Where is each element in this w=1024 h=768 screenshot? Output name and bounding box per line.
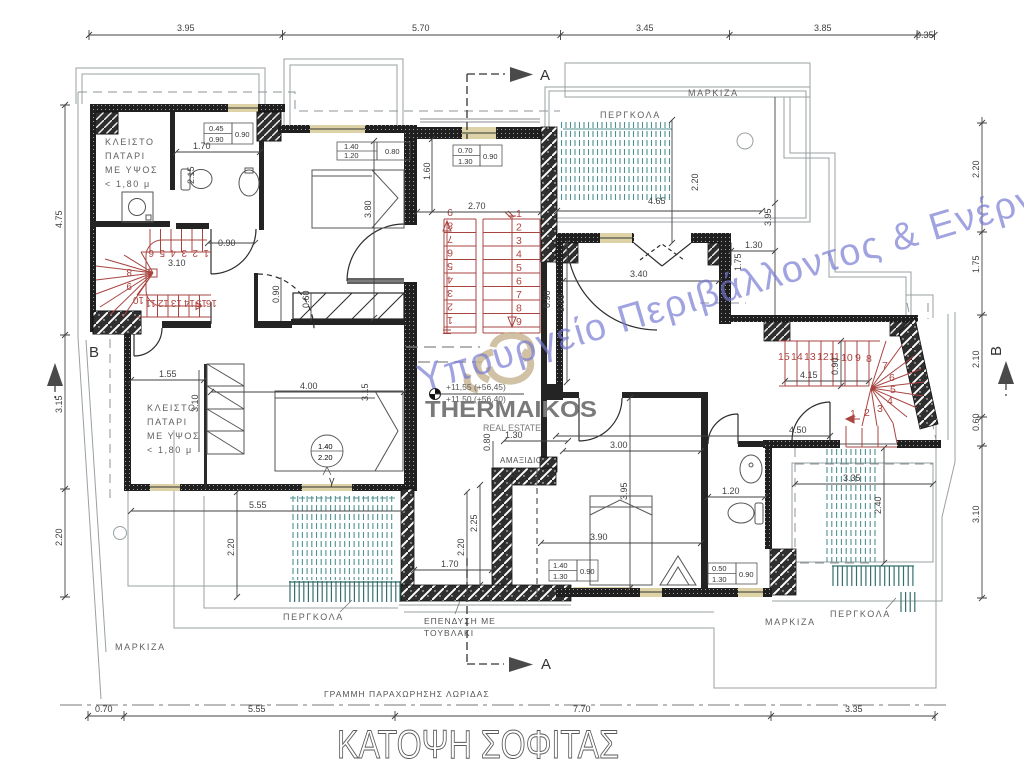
svg-text:1.70: 1.70 xyxy=(441,559,459,569)
svg-text:ΑΜΑΞΙΔΙΟ: ΑΜΑΞΙΔΙΟ xyxy=(500,456,543,465)
svg-text:0.70: 0.70 xyxy=(458,146,473,155)
svg-text:2.40: 2.40 xyxy=(873,496,883,514)
svg-text:ΠΕΡΓΚΟΛΑ: ΠΕΡΓΚΟΛΑ xyxy=(830,609,891,619)
svg-text:0.60: 0.60 xyxy=(301,290,311,308)
svg-text:9: 9 xyxy=(855,352,861,364)
svg-text:4.15: 4.15 xyxy=(800,370,818,380)
svg-text:9: 9 xyxy=(126,280,132,291)
svg-text:3.00: 3.00 xyxy=(556,294,566,312)
svg-text:REAL ESTATE: REAL ESTATE xyxy=(483,423,541,434)
svg-text:1.30: 1.30 xyxy=(712,575,727,584)
svg-text:0.90: 0.90 xyxy=(542,290,552,308)
svg-text:ΜΑΡΚΙΖΑ: ΜΑΡΚΙΖΑ xyxy=(115,642,166,652)
svg-text:2.20: 2.20 xyxy=(226,538,236,556)
svg-text:3: 3 xyxy=(447,287,453,299)
svg-text:B: B xyxy=(988,346,1005,356)
svg-text:11: 11 xyxy=(145,297,156,308)
svg-text:9: 9 xyxy=(516,316,522,328)
svg-text:5: 5 xyxy=(447,260,453,272)
svg-text:ΚΛΕΙΣΤΟ: ΚΛΕΙΣΤΟ xyxy=(147,403,197,413)
svg-text:13: 13 xyxy=(170,297,182,308)
svg-text:8: 8 xyxy=(516,303,522,315)
svg-text:5.70: 5.70 xyxy=(412,23,430,33)
svg-text:2.70: 2.70 xyxy=(468,201,486,211)
svg-text:3.80: 3.80 xyxy=(363,200,373,218)
svg-text:3: 3 xyxy=(516,235,522,247)
svg-text:10: 10 xyxy=(841,352,853,364)
svg-text:2.20: 2.20 xyxy=(690,173,700,191)
svg-text:2: 2 xyxy=(864,407,870,419)
svg-text:1.40: 1.40 xyxy=(553,561,568,570)
svg-text:16: 16 xyxy=(205,297,217,308)
svg-text:0.50: 0.50 xyxy=(712,564,727,573)
svg-text:ΠΑΤΑΡΙ: ΠΑΤΑΡΙ xyxy=(105,151,146,161)
svg-text:6: 6 xyxy=(889,372,895,384)
svg-text:ΜΑΡΚΙΖΑ: ΜΑΡΚΙΖΑ xyxy=(765,617,816,627)
svg-text:4.50: 4.50 xyxy=(789,425,807,435)
svg-text:3.15: 3.15 xyxy=(54,395,64,413)
svg-text:4: 4 xyxy=(887,395,893,407)
svg-text:14: 14 xyxy=(791,351,803,363)
svg-text:4.00: 4.00 xyxy=(300,381,318,391)
svg-text:ΕΠΕΝΔΥΣΗ ΜΕ: ΕΠΕΝΔΥΣΗ ΜΕ xyxy=(424,616,496,626)
svg-text:1: 1 xyxy=(516,208,522,220)
svg-text:1.20: 1.20 xyxy=(344,151,359,160)
svg-text:3: 3 xyxy=(181,247,187,258)
svg-text:8: 8 xyxy=(126,266,132,277)
svg-text:2: 2 xyxy=(447,301,453,313)
svg-text:0.90: 0.90 xyxy=(218,238,236,248)
svg-text:1.30: 1.30 xyxy=(745,240,763,250)
svg-text:A: A xyxy=(541,656,551,673)
svg-text:B: B xyxy=(89,344,99,361)
svg-text:3.90: 3.90 xyxy=(590,532,608,542)
svg-text:3.45: 3.45 xyxy=(636,23,654,33)
svg-text:1.30: 1.30 xyxy=(458,157,473,166)
svg-text:2.25: 2.25 xyxy=(469,514,479,532)
svg-text:4.75: 4.75 xyxy=(54,210,64,228)
svg-text:0.90: 0.90 xyxy=(235,130,250,139)
svg-text:0.90: 0.90 xyxy=(483,152,498,161)
svg-text:2.10: 2.10 xyxy=(971,350,981,368)
svg-text:A: A xyxy=(540,67,550,84)
svg-text:6: 6 xyxy=(148,247,154,258)
svg-text:7: 7 xyxy=(882,360,888,372)
svg-text:3.10: 3.10 xyxy=(168,258,186,268)
svg-text:14: 14 xyxy=(183,297,195,308)
svg-text:1: 1 xyxy=(447,314,453,326)
svg-text:1.70: 1.70 xyxy=(193,141,211,151)
svg-text:0.45: 0.45 xyxy=(209,124,224,133)
svg-text:3.85: 3.85 xyxy=(814,23,832,33)
svg-text:10: 10 xyxy=(132,294,144,305)
svg-text:6: 6 xyxy=(447,247,453,259)
svg-text:12: 12 xyxy=(817,351,829,363)
svg-text:3.35: 3.35 xyxy=(843,473,861,483)
svg-text:2.20: 2.20 xyxy=(54,528,64,546)
svg-text:ΚΛΕΙΣΤΟ: ΚΛΕΙΣΤΟ xyxy=(105,137,155,147)
svg-text:5: 5 xyxy=(516,262,522,274)
svg-text:1: 1 xyxy=(850,408,856,420)
svg-text:1.40: 1.40 xyxy=(344,142,359,151)
svg-text:13: 13 xyxy=(804,351,816,363)
svg-text:0.90: 0.90 xyxy=(580,567,595,576)
svg-text:8: 8 xyxy=(447,220,453,232)
svg-text:7: 7 xyxy=(516,289,522,301)
svg-text:6: 6 xyxy=(516,276,522,288)
svg-text:4: 4 xyxy=(447,274,453,286)
svg-text:ΠΕΡΓΚΟΛΑ: ΠΕΡΓΚΟΛΑ xyxy=(600,110,661,120)
svg-text:1.75: 1.75 xyxy=(971,255,981,273)
svg-text:ΓΡΑΜΜΗ ΠΑΡΑΧΩΡΗΣΗΣ ΛΩΡΙΔΑΣ: ΓΡΑΜΜΗ ΠΑΡΑΧΩΡΗΣΗΣ ΛΩΡΙΔΑΣ xyxy=(324,689,490,699)
svg-text:3.00: 3.00 xyxy=(610,440,628,450)
svg-text:12: 12 xyxy=(157,297,169,308)
svg-text:7.70: 7.70 xyxy=(573,704,591,714)
svg-text:3.95: 3.95 xyxy=(763,208,773,226)
svg-text:0.80: 0.80 xyxy=(385,147,400,156)
svg-text:ΠΕΡΓΚΟΛΑ: ΠΕΡΓΚΟΛΑ xyxy=(283,612,344,622)
svg-text:0.90: 0.90 xyxy=(830,357,840,375)
svg-text:3.40: 3.40 xyxy=(630,269,648,279)
svg-text:0.90: 0.90 xyxy=(739,570,754,579)
svg-text:ΚΑΤΟΨΗ ΣΟΦΙΤΑΣ: ΚΑΤΟΨΗ ΣΟΦΙΤΑΣ xyxy=(337,723,619,767)
svg-text:15: 15 xyxy=(778,351,790,363)
svg-text:1.30: 1.30 xyxy=(553,572,568,581)
svg-text:ΜΕ ΥΨΟΣ: ΜΕ ΥΨΟΣ xyxy=(105,165,158,175)
svg-text:2.20: 2.20 xyxy=(318,453,333,462)
svg-text:3.35: 3.35 xyxy=(845,704,863,714)
svg-text:5.55: 5.55 xyxy=(248,704,266,714)
svg-text:2.20: 2.20 xyxy=(971,160,981,178)
svg-text:3.10: 3.10 xyxy=(971,505,981,523)
svg-text:1.40: 1.40 xyxy=(318,442,333,451)
svg-text:1.20: 1.20 xyxy=(722,486,740,496)
svg-text:γ: γ xyxy=(329,475,335,487)
svg-text:0.35: 0.35 xyxy=(916,30,934,40)
svg-text:< 1,80 μ: < 1,80 μ xyxy=(147,445,193,455)
svg-text:ΜΑΡΚΙΖΑ: ΜΑΡΚΙΖΑ xyxy=(688,88,739,98)
svg-text:2.15: 2.15 xyxy=(186,166,196,184)
svg-text:4.65: 4.65 xyxy=(648,196,666,206)
svg-text:8: 8 xyxy=(866,353,872,365)
svg-text:< 1,80 μ: < 1,80 μ xyxy=(105,179,151,189)
svg-text:0.90: 0.90 xyxy=(271,285,281,303)
svg-text:3: 3 xyxy=(877,403,883,415)
svg-text:3.95: 3.95 xyxy=(177,23,195,33)
svg-text:4: 4 xyxy=(170,247,176,258)
svg-text:2: 2 xyxy=(192,247,198,258)
svg-text:4: 4 xyxy=(516,249,522,261)
svg-text:5: 5 xyxy=(159,247,165,258)
svg-text:3.95: 3.95 xyxy=(619,482,629,500)
svg-text:0.60: 0.60 xyxy=(971,413,981,431)
svg-text:0.70: 0.70 xyxy=(95,704,113,714)
svg-text:0.90: 0.90 xyxy=(209,135,224,144)
svg-text:1.55: 1.55 xyxy=(159,369,177,379)
svg-text:ΜΕ ΥΨΟΣ: ΜΕ ΥΨΟΣ xyxy=(147,431,200,441)
svg-text:3.15: 3.15 xyxy=(360,383,370,401)
svg-text:1.60: 1.60 xyxy=(422,162,432,180)
svg-text:7: 7 xyxy=(447,233,453,245)
svg-text:2.20: 2.20 xyxy=(456,538,466,556)
svg-text:THERMAIKOS: THERMAIKOS xyxy=(425,396,597,422)
svg-text:1: 1 xyxy=(203,247,209,258)
svg-text:15: 15 xyxy=(195,297,207,308)
svg-text:2: 2 xyxy=(516,222,522,234)
svg-text:0.80: 0.80 xyxy=(482,433,492,451)
svg-text:ΠΑΤΑΡΙ: ΠΑΤΑΡΙ xyxy=(147,417,188,427)
svg-text:5.55: 5.55 xyxy=(249,500,267,510)
